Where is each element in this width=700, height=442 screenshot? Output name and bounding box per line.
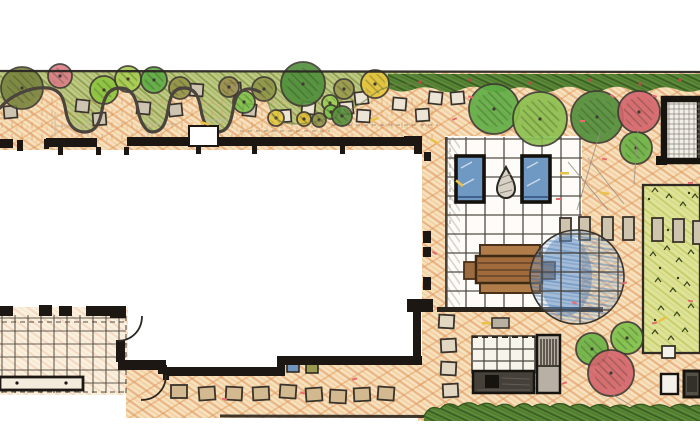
deck-bench [0,377,83,390]
landscape-plan-drawing [0,0,700,442]
stone-gray [492,318,509,328]
hedge-south [424,403,700,421]
se-square-dark-inner [687,376,697,392]
north-boundary-line [0,71,700,72]
se-square-white [661,374,678,394]
structure-foot [656,156,667,165]
lawn [643,185,700,353]
structure-base [664,99,700,161]
scan-margin-bottom [0,421,700,442]
scanned-landscape-plan [0,0,700,442]
water-feature [530,230,624,324]
wall-recess [189,126,218,146]
canopy-base [472,336,535,373]
stone-lawn-notch [662,346,675,358]
shed-inner [485,375,499,388]
